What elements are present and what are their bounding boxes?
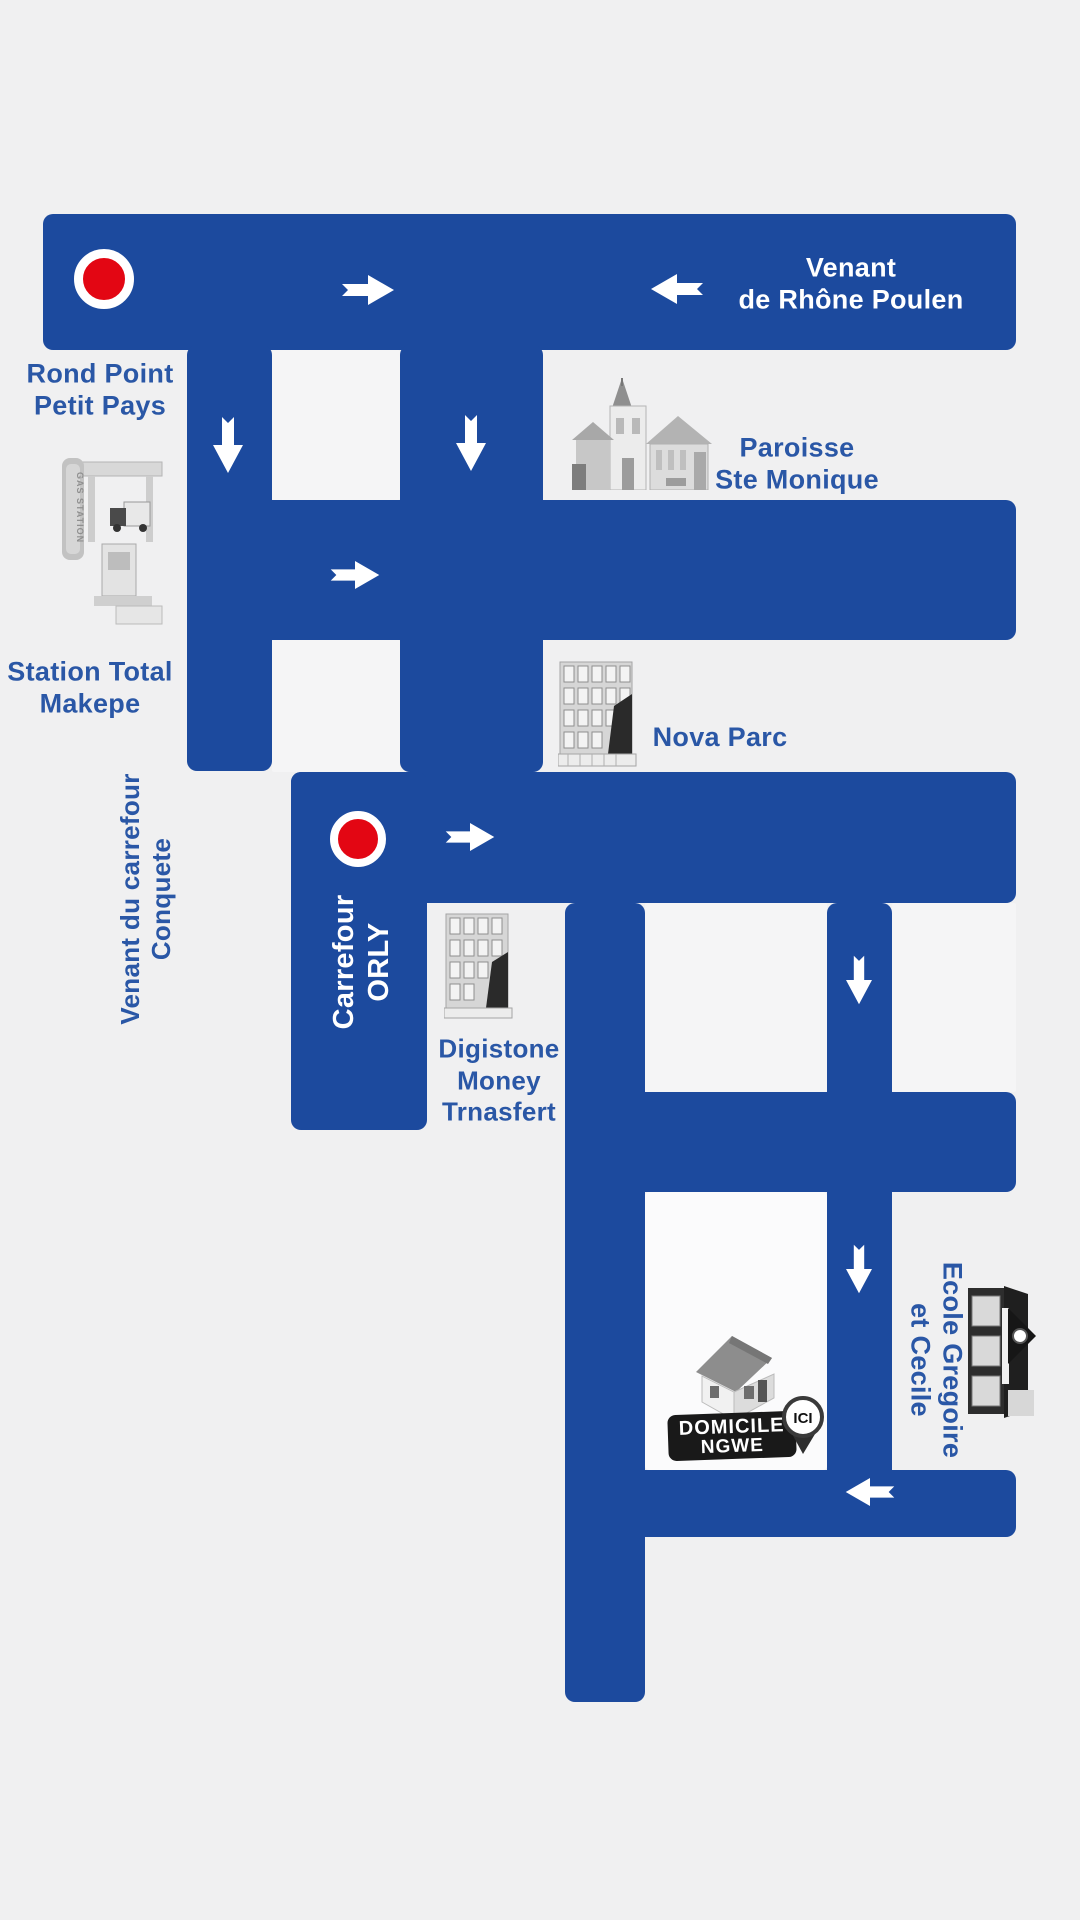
label-line: Digistone [438,1033,559,1065]
ici-pin-icon: ICI [778,1394,828,1467]
label-line: de Rhône Poulen [738,284,963,316]
roundabout-marker-orly-icon [330,811,386,867]
roundabout-marker-petit-pays-icon [74,249,134,309]
label-line: Petit Pays [27,390,174,422]
road-vertical-west-ngwe [565,903,645,1702]
access-map: GAS STATION [0,0,1080,1920]
label-line: Conquete [146,773,177,1024]
city-block [272,640,400,772]
road-bottom-horizontal [565,1470,1016,1537]
digistone-building-icon [444,912,518,1029]
label-line: Money [438,1065,559,1097]
city-block [645,903,827,1092]
arrow-down-icon [213,417,243,473]
label-line: et Cecile [904,1262,936,1458]
school-building-icon [958,1278,1036,1431]
label-line: Makepe [7,688,172,720]
arrow-down-icon [846,954,872,1006]
arrow-down-icon [846,1243,872,1295]
label-venant-rhone: Venant de Rhône Poulen [738,252,963,317]
arrow-down-icon [456,415,486,471]
gas-station-sign-text: GAS STATION [75,472,85,543]
city-block [272,350,400,500]
arrow-right-icon [342,275,394,305]
label-digistone-money-trnasfert: Digistone Money Trnasfert [438,1033,559,1128]
label-line: Paroisse [715,432,879,464]
label-line: Rond Point [27,358,174,390]
label-line: Ste Monique [715,464,879,496]
label-carrefour-orly: Carrefour ORLY [327,895,397,1030]
arrow-left-icon [845,1478,895,1506]
label-station-total-makepe: Station Total Makepe [7,656,172,721]
nova-parc-building-icon [558,660,642,773]
label-paroisse-ste-monique: Paroisse Ste Monique [715,432,879,497]
road-middle-horizontal [187,500,1016,640]
ici-pin-text: ICI [793,1410,812,1427]
city-block [892,903,1016,1092]
label-line: Nova Parc [653,721,788,753]
arrow-right-icon [445,823,495,851]
arrow-right-icon [330,561,380,589]
label-line: Ecole Gregoire [936,1262,968,1458]
label-ecole-gregoire-cecile: Ecole Gregoire et Cecile [904,1262,969,1458]
label-rond-point-petit-pays: Rond Point Petit Pays [27,358,174,423]
arrow-left-icon [651,274,703,304]
label-line: Venant du carrefour [115,773,146,1024]
label-line: ORLY [362,895,397,1030]
road-lower-horizontal [565,1092,1016,1192]
label-line: Station Total [7,656,172,688]
label-nova-parc: Nova Parc [653,721,788,753]
gas-station-icon: GAS STATION [58,448,166,645]
label-line: Trnasfert [438,1097,559,1129]
label-line: Venant [738,252,963,284]
label-line: Carrefour [327,895,362,1030]
church-icon [570,378,720,495]
label-venant-carrefour-conquete: Venant du carrefour Conquete [115,773,177,1024]
